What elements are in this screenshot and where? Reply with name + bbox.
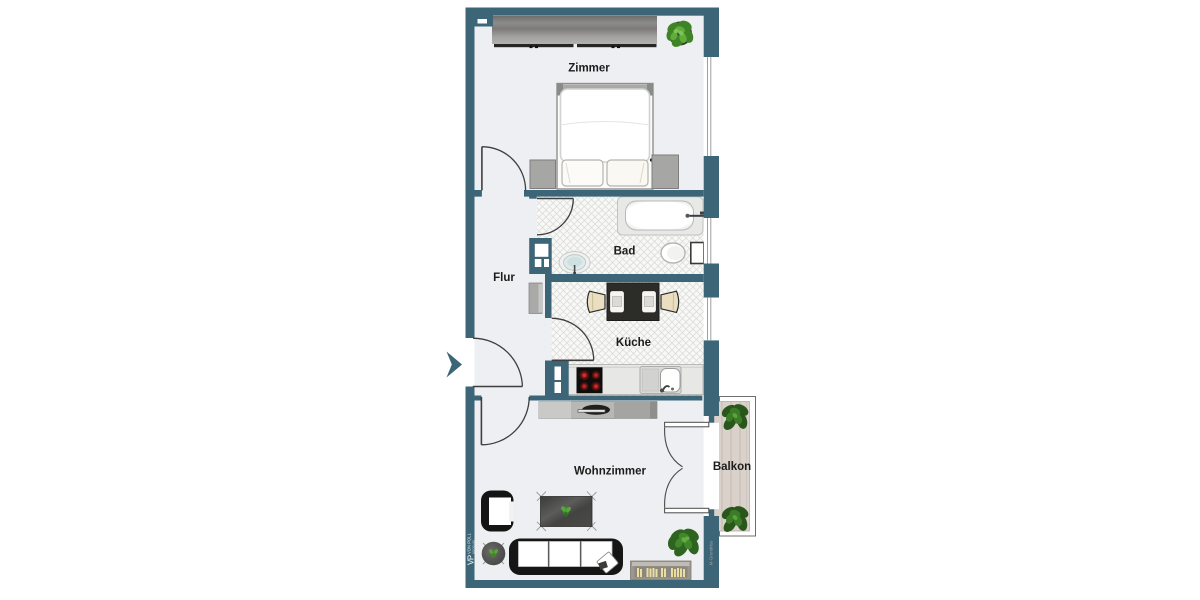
svg-text:Zimmer: Zimmer bbox=[568, 63, 610, 75]
svg-text:Wohnzimmer: Wohnzimmer bbox=[574, 466, 647, 478]
svg-text:Bad: Bad bbox=[614, 246, 636, 258]
svg-text:Balkon: Balkon bbox=[713, 461, 751, 473]
svg-text:Küche: Küche bbox=[616, 337, 651, 349]
svg-text:VON POLL: VON POLL bbox=[467, 532, 472, 554]
svg-text:Flur: Flur bbox=[493, 272, 515, 284]
svg-text:VP: VP bbox=[467, 555, 476, 565]
svg-text:M-Grundriss: M-Grundriss bbox=[709, 540, 714, 566]
svg-text:IMMOBILIEN: IMMOBILIEN bbox=[473, 540, 476, 554]
